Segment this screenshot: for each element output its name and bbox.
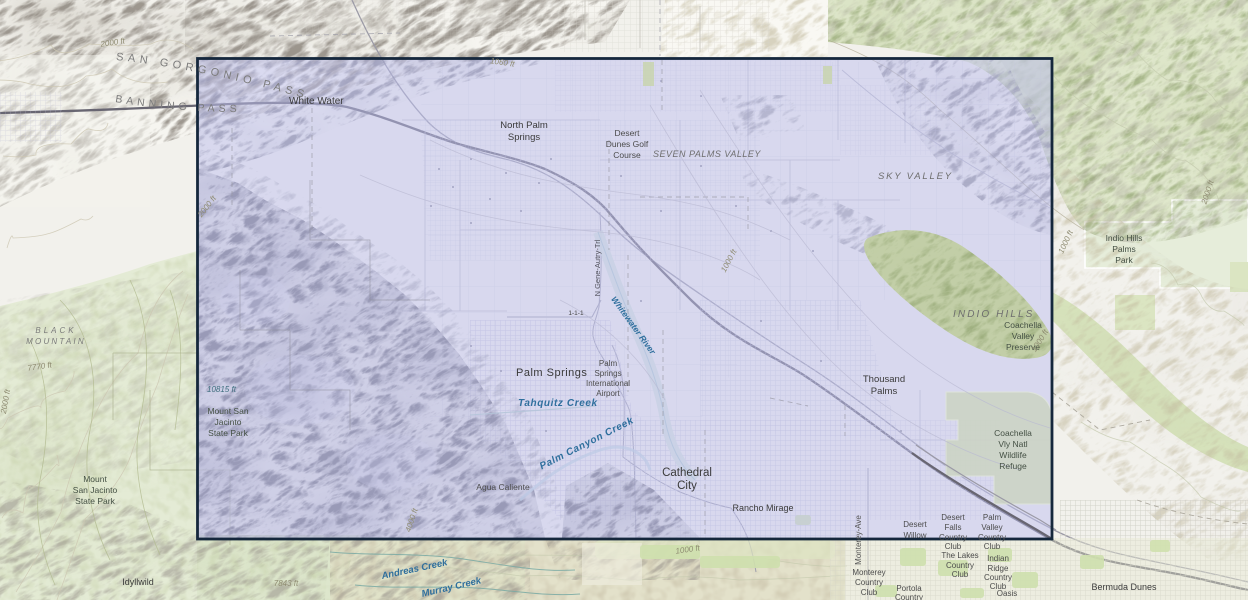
svg-text:Club: Club [952,570,969,579]
svg-text:Course: Course [613,150,641,160]
svg-text:Dunes Golf: Dunes Golf [606,139,649,149]
svg-text:North Palm: North Palm [500,120,548,131]
svg-text:Country: Country [984,573,1012,582]
svg-text:1-1-1: 1-1-1 [568,310,584,317]
svg-text:Palm: Palm [983,513,1002,522]
svg-text:Country: Country [946,561,974,570]
svg-text:International: International [586,379,630,388]
svg-text:N Gene-Autry-Trl: N Gene-Autry-Trl [593,239,602,296]
svg-text:Park: Park [1115,255,1133,265]
svg-text:Willow: Willow [903,531,926,540]
svg-text:Tahquitz Creek: Tahquitz Creek [518,398,598,409]
svg-text:Springs: Springs [594,369,621,378]
svg-text:Cathedral: Cathedral [662,467,712,479]
svg-text:Desert: Desert [614,128,640,138]
svg-text:Country: Country [855,578,883,587]
svg-text:Thousand: Thousand [863,374,905,385]
svg-text:Agua Caliente: Agua Caliente [476,482,530,492]
svg-text:Palm Springs: Palm Springs [516,367,587,379]
svg-text:State Park: State Park [208,428,248,438]
svg-text:Desert: Desert [941,513,965,522]
svg-text:Palm: Palm [599,359,618,368]
svg-text:INDIO HILLS: INDIO HILLS [953,309,1034,320]
svg-text:Country: Country [939,533,967,542]
svg-text:San Jacinto: San Jacinto [73,485,118,495]
svg-text:Indian: Indian [987,554,1009,563]
svg-text:Desert: Desert [903,520,927,529]
svg-text:Refuge: Refuge [999,461,1027,471]
svg-text:Airport: Airport [596,389,620,398]
svg-text:Portola: Portola [896,584,922,593]
svg-text:SKY VALLEY: SKY VALLEY [878,171,953,182]
svg-text:Coachella: Coachella [994,428,1032,438]
svg-text:Oasis: Oasis [997,589,1017,598]
svg-text:10815 ft: 10815 ft [207,385,237,394]
svg-text:Vly Natl: Vly Natl [998,439,1027,449]
svg-text:Indio Hills: Indio Hills [1106,233,1143,243]
svg-text:Country: Country [978,533,1006,542]
svg-text:Valley: Valley [1012,331,1035,341]
svg-text:Wildlife: Wildlife [999,450,1027,460]
svg-text:White Water: White Water [289,96,344,107]
svg-text:Idyllwild: Idyllwild [122,577,154,587]
svg-text:Monterey: Monterey [852,568,885,577]
svg-text:Club: Club [945,542,962,551]
svg-text:Mount: Mount [83,474,107,484]
svg-text:Bermuda Dunes: Bermuda Dunes [1091,582,1157,592]
svg-text:Valley: Valley [981,523,1002,532]
svg-text:Country: Country [895,593,923,600]
svg-text:Club: Club [861,588,878,597]
svg-text:The Lakes: The Lakes [941,551,978,560]
svg-text:Springs: Springs [508,132,540,143]
svg-text:Monterey-Ave: Monterey-Ave [854,515,863,565]
svg-text:MOUNTAIN: MOUNTAIN [26,337,86,346]
svg-text:Mount San: Mount San [207,406,248,416]
svg-text:Falls: Falls [945,523,962,532]
svg-text:Palms: Palms [1112,244,1136,254]
svg-text:State Park: State Park [75,496,115,506]
svg-text:Rancho Mirage: Rancho Mirage [732,503,793,513]
svg-text:SEVEN PALMS VALLEY: SEVEN PALMS VALLEY [653,149,761,159]
svg-text:Ridge: Ridge [988,564,1009,573]
svg-text:Palms: Palms [871,386,898,397]
svg-text:Jacinto: Jacinto [215,417,242,427]
svg-text:7843 ft: 7843 ft [274,579,299,588]
svg-text:BLACK: BLACK [35,326,76,335]
svg-text:City: City [677,480,697,492]
svg-text:Club: Club [984,542,1001,551]
svg-text:Coachella: Coachella [1004,320,1042,330]
